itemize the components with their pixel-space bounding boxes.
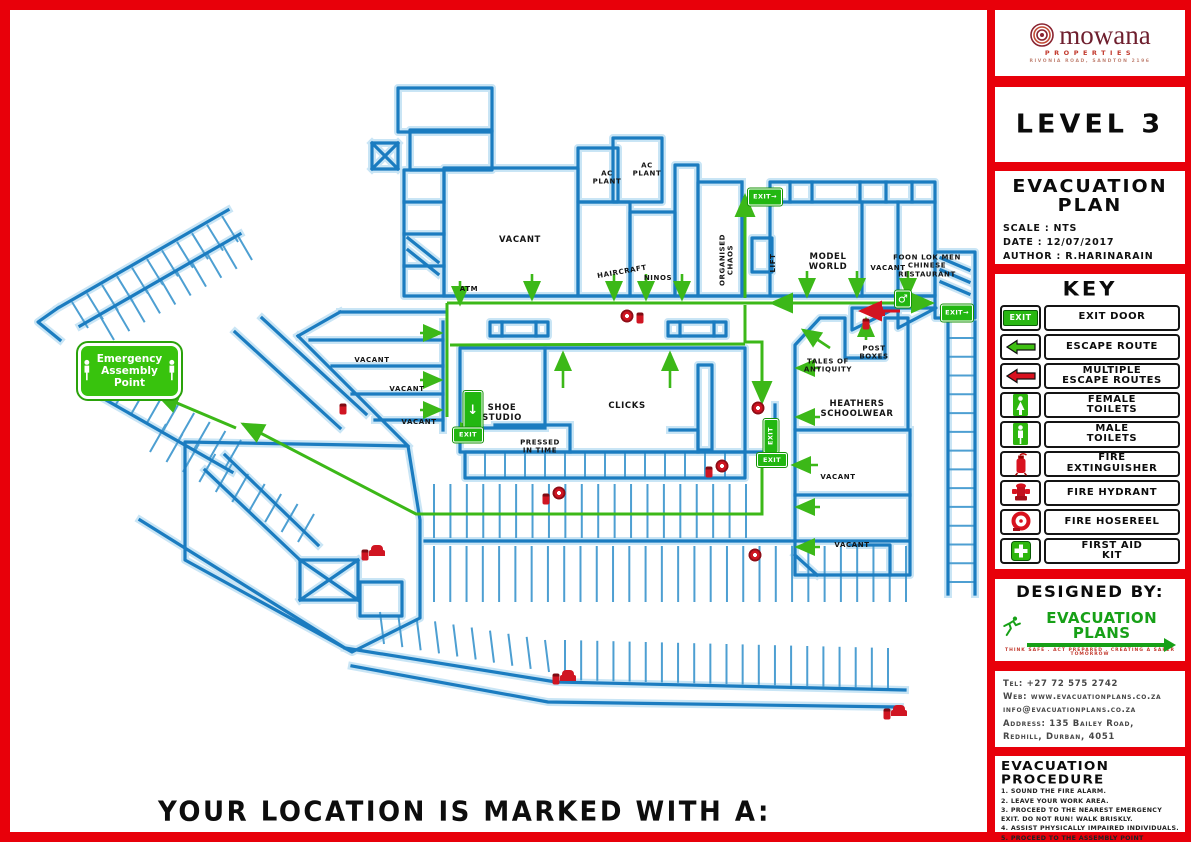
room-label-vacant: VACANT <box>820 473 855 481</box>
key-row-fire-extinguisher: FIRE EXTINGUISHER <box>1000 451 1180 477</box>
floor-plan-map: VACANTAC PLANTAC PLANTHAIRCRAFTNINOSORGA… <box>10 10 987 832</box>
procedure-step: 1. SOUND THE FIRE ALARM. <box>1001 788 1179 797</box>
exit-sign: EXIT <box>757 453 787 467</box>
key-label: FEMALE TOILETS <box>1044 392 1180 418</box>
key-label: FIRE HYDRANT <box>1044 480 1180 506</box>
key-row-fire-hosereel: FIRE HOSEREEL <box>1000 509 1180 535</box>
fire-hosereel-icon <box>553 487 566 500</box>
contact-line: Tel: +27 72 575 2742 <box>1003 678 1177 691</box>
room-label-ac-plant: AC PLANT <box>633 162 662 179</box>
fire-hosereel-icon <box>1000 509 1041 535</box>
exit-sign: EXIT→ <box>941 305 973 322</box>
fire-extinguisher-icon <box>1000 451 1041 477</box>
key-row-fire-hydrant: FIRE HYDRANT <box>1000 480 1180 506</box>
room-label-organised-chaos: ORGANISED CHAOS <box>719 234 736 286</box>
room-label-foon-lok-men-chinese-restaurant: FOON LOK MEN CHINESE RESTAURANT <box>893 253 961 278</box>
fire-hydrant-icon <box>1000 480 1041 506</box>
key-row-exit-door: EXITEXIT DOOR <box>1000 305 1180 331</box>
contact-box: Tel: +27 72 575 2742Web: www.evacuationp… <box>995 671 1185 747</box>
level-title: LEVEL 3 <box>1016 112 1164 138</box>
mowana-spiral-icon <box>1029 22 1055 48</box>
room-label-vacant: VACANT <box>499 235 541 245</box>
fire-extinguisher-icon <box>553 674 560 685</box>
key-title: KEY <box>1000 280 1180 300</box>
room-label-tales-of-antiquity: TALES OF ANTIQUITY <box>804 358 852 375</box>
room-labels-layer: VACANTAC PLANTAC PLANTHAIRCRAFTNINOSORGA… <box>10 10 997 832</box>
key-label: ESCAPE ROUTE <box>1044 334 1180 360</box>
plan-date: DATE : 12/07/2017 <box>1003 236 1177 250</box>
fire-hosereel-icon <box>752 402 765 415</box>
procedure-step: 3. PROCEED TO THE NEAREST EMERGENCY EXIT… <box>1001 807 1179 824</box>
room-label-haircraft: HAIRCRAFT <box>597 264 648 281</box>
multiple-escape-routes-icon <box>1000 363 1041 389</box>
runner-icon <box>1001 614 1022 638</box>
fire-hosereel-icon <box>716 460 729 473</box>
procedure-step: 5. PROCEED TO THE ASSEMBLY POINT LOCATED… <box>1001 835 1179 842</box>
key-label: EXIT DOOR <box>1044 305 1180 331</box>
fire-hydrant-icon <box>562 670 574 680</box>
plan-title-box: EVACUATION PLAN SCALE : NTS DATE : 12/07… <box>995 171 1185 264</box>
contact-line: info@evacuationplans.co.za <box>1003 704 1177 717</box>
key-label: MULTIPLE ESCAPE ROUTES <box>1044 363 1180 389</box>
evacuation-procedure-box: EVACUATION PROCEDURE 1. SOUND THE FIRE A… <box>995 756 1185 832</box>
room-label-pressed-in-time: PRESSED IN TIME <box>520 439 560 456</box>
fire-hydrant-icon <box>893 705 905 715</box>
fire-extinguisher-icon <box>884 709 891 720</box>
designed-by-heading: DESIGNED BY: <box>1001 584 1179 600</box>
mowana-logo-box: mowana PROPERTIES RIVONIA ROAD, SANDTON … <box>995 10 1185 76</box>
key-row-multiple-escape-routes: MULTIPLE ESCAPE ROUTES <box>1000 363 1180 389</box>
contact-line: Redhill, Durban, 4051 <box>1003 731 1177 744</box>
room-label-ac-plant: AC PLANT <box>593 170 622 187</box>
fire-hosereel-icon <box>749 549 762 562</box>
contact-line: Address: 135 Bailey Road, <box>1003 718 1177 731</box>
room-label-ninos: NINOS <box>644 274 672 282</box>
mowana-wordmark: mowana <box>1059 23 1150 47</box>
key-row-escape-route: ESCAPE ROUTE <box>1000 334 1180 360</box>
key-label: FIRE HOSEREEL <box>1044 509 1180 535</box>
fire-extinguisher-icon <box>637 313 644 324</box>
room-label-atm: ATM <box>460 285 478 293</box>
first-aid-kit-icon <box>1000 538 1041 564</box>
exit-sign: EXIT→ <box>748 189 782 206</box>
plan-author: AUTHOR : R.HARINARAIN <box>1003 250 1177 264</box>
fire-extinguisher-icon <box>362 550 369 561</box>
fire-extinguisher-icon <box>543 494 550 505</box>
fire-hosereel-icon <box>621 310 634 323</box>
key-label: MALE TOILETS <box>1044 421 1180 447</box>
mowana-properties-label: PROPERTIES <box>1045 50 1135 57</box>
exit-sign: ↓ <box>464 391 483 429</box>
male-toilets-icon <box>1000 421 1041 447</box>
key-row-male-toilets: MALE TOILETS <box>1000 421 1180 447</box>
contact-line: Web: www.evacuationplans.co.za <box>1003 691 1177 704</box>
fire-hydrant-icon <box>371 545 383 555</box>
key-row-female-toilets: FEMALE TOILETS <box>1000 392 1180 418</box>
room-label-vacant: VACANT <box>401 418 436 426</box>
toilets-sign: ♂ <box>895 291 911 308</box>
procedure-step: 4. ASSIST PHYSICALLY IMPAIRED INDIVIDUAL… <box>1001 825 1179 834</box>
female-toilets-icon <box>1000 392 1041 418</box>
level-box: LEVEL 3 <box>995 87 1185 162</box>
room-label-vacant: VACANT <box>354 356 389 364</box>
room-label-vacant: VACANT <box>389 385 424 393</box>
exit-sign: EXIT <box>453 428 483 443</box>
fire-hydrant-icon <box>871 305 883 315</box>
emergency-assembly-point-sign: Emergency Assembly Point <box>78 343 181 399</box>
key-legend: KEY EXITEXIT DOORESCAPE ROUTEMULTIPLE ES… <box>995 274 1185 569</box>
room-label-vacant: VACANT <box>834 541 869 549</box>
evacuation-plan-poster: VACANTAC PLANTAC PLANTHAIRCRAFTNINOSORGA… <box>0 0 1191 842</box>
mowana-address: RIVONIA ROAD, SANDTON 2196 <box>1029 60 1150 65</box>
room-label-lift: LIFT <box>769 253 777 272</box>
exit-door-icon: EXIT <box>1000 305 1041 331</box>
room-label-heathers-schoolwear: HEATHERS SCHOOLWEAR <box>821 399 894 419</box>
exit-sign: EXIT <box>764 419 779 453</box>
fire-extinguisher-icon <box>863 319 870 330</box>
person-icon <box>81 358 93 384</box>
fire-extinguisher-icon <box>706 467 713 478</box>
your-location-note: YOUR LOCATION IS MARKED WITH A: <box>158 798 771 825</box>
plan-scale: SCALE : NTS <box>1003 222 1177 236</box>
logo-arrow <box>1027 643 1165 647</box>
procedure-title: EVACUATION PROCEDURE <box>1001 761 1179 787</box>
person-icon <box>166 358 178 384</box>
logo-tagline: THINK SAFE . ACT PREPARED . CREATING A S… <box>1001 649 1179 658</box>
evacuation-plans-wordmark: EVACUATION PLANS <box>1024 611 1179 641</box>
room-label-model-world: MODEL WORLD <box>809 252 848 272</box>
fire-extinguisher-icon <box>340 404 347 415</box>
room-label-post-boxes: POST BOXES <box>859 345 888 362</box>
escape-route-icon <box>1000 334 1041 360</box>
room-label-clicks: CLICKS <box>608 401 645 411</box>
key-label: FIRST AID KIT <box>1044 538 1180 564</box>
key-label: FIRE EXTINGUISHER <box>1044 451 1180 477</box>
procedure-step: 2. LEAVE YOUR WORK AREA. <box>1001 798 1179 807</box>
designed-by-box: DESIGNED BY: EVACUATION PLANS THINK SAFE… <box>995 579 1185 661</box>
procedure-steps: 1. SOUND THE FIRE ALARM.2. LEAVE YOUR WO… <box>1001 788 1179 842</box>
key-row-first-aid-kit: FIRST AID KIT <box>1000 538 1180 564</box>
room-label-shoe-studio: SHOE STUDIO <box>482 403 522 423</box>
assembly-point-label: Emergency Assembly Point <box>97 353 163 389</box>
plan-title: EVACUATION PLAN <box>1003 178 1177 216</box>
